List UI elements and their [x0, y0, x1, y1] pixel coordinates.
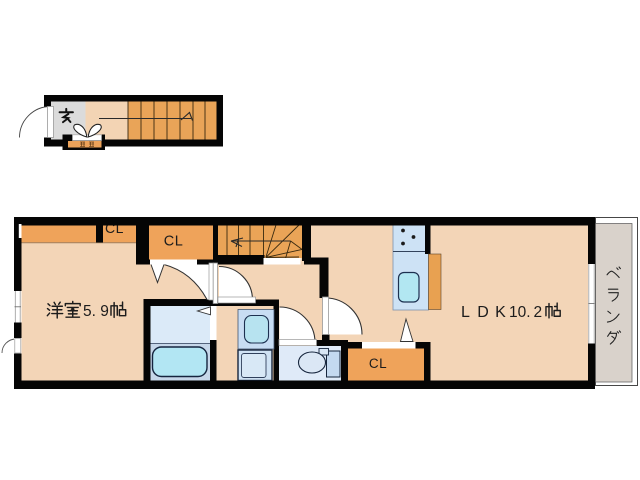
svg-text:CL: CL: [164, 234, 184, 250]
svg-text:CL: CL: [369, 356, 387, 371]
svg-text:5. 9: 5. 9: [83, 303, 109, 320]
svg-text:K: K: [495, 304, 506, 321]
svg-text:D: D: [477, 304, 489, 321]
svg-text:2: 2: [534, 304, 543, 321]
svg-text:L: L: [461, 304, 470, 321]
svg-text:10.: 10.: [509, 304, 531, 321]
